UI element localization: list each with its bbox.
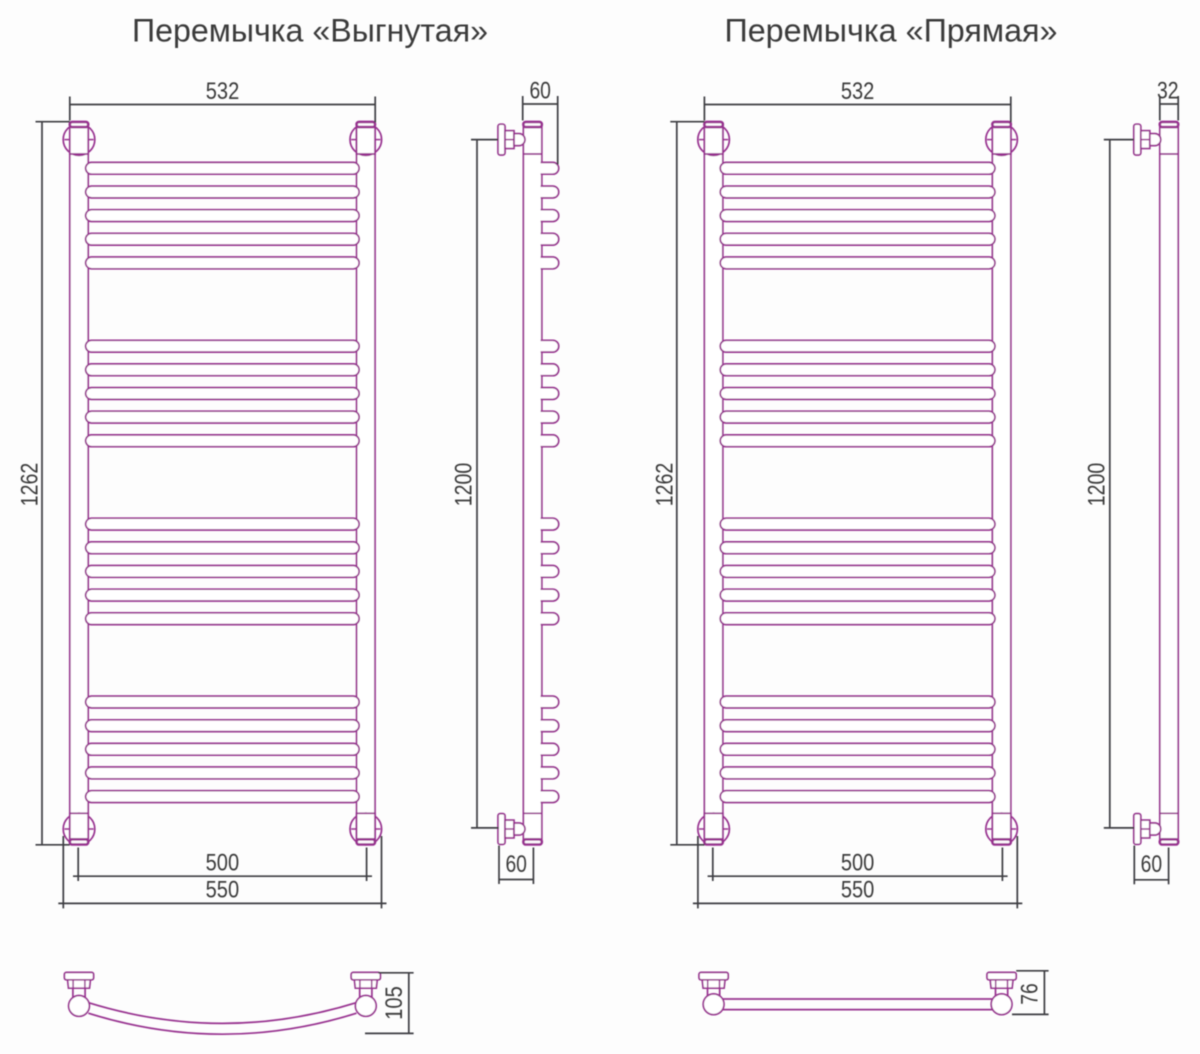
svg-text:1200: 1200 bbox=[451, 463, 478, 507]
svg-text:500: 500 bbox=[206, 850, 240, 877]
svg-text:Перемычка «Прямая»: Перемычка «Прямая» bbox=[725, 13, 1058, 49]
svg-text:Перемычка «Выгнутая»: Перемычка «Выгнутая» bbox=[132, 13, 488, 49]
svg-text:60: 60 bbox=[1141, 851, 1163, 878]
svg-text:76: 76 bbox=[1017, 983, 1044, 1005]
svg-text:60: 60 bbox=[505, 851, 527, 878]
svg-text:550: 550 bbox=[206, 877, 240, 904]
svg-text:532: 532 bbox=[841, 78, 875, 105]
svg-text:105: 105 bbox=[381, 986, 408, 1020]
svg-text:1200: 1200 bbox=[1083, 463, 1110, 507]
svg-text:60: 60 bbox=[529, 78, 551, 105]
svg-text:500: 500 bbox=[841, 850, 875, 877]
svg-text:1262: 1262 bbox=[651, 463, 678, 507]
svg-text:532: 532 bbox=[206, 78, 240, 105]
svg-text:550: 550 bbox=[841, 877, 875, 904]
svg-text:32: 32 bbox=[1157, 78, 1179, 105]
svg-text:1262: 1262 bbox=[17, 463, 44, 507]
